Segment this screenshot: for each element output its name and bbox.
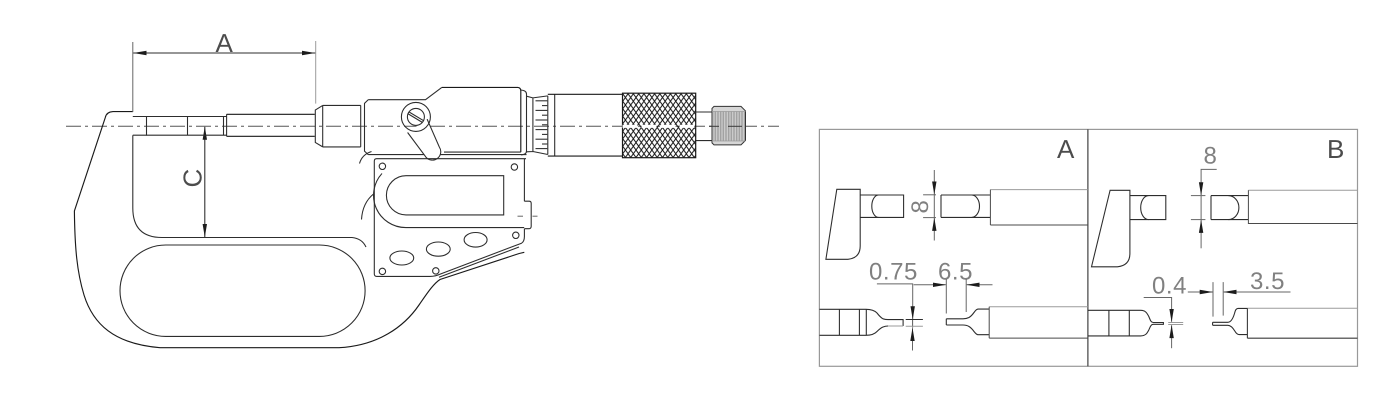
svg-text:C: C <box>178 169 208 188</box>
svg-text:B: B <box>1327 134 1344 164</box>
svg-text:A: A <box>216 28 234 58</box>
svg-text:8: 8 <box>1204 143 1218 170</box>
svg-text:8: 8 <box>907 200 934 214</box>
svg-text:0.75: 0.75 <box>869 259 918 286</box>
svg-text:6.5: 6.5 <box>938 259 973 286</box>
svg-text:3.5: 3.5 <box>1250 268 1285 295</box>
svg-text:0.4: 0.4 <box>1152 272 1187 299</box>
svg-text:A: A <box>1057 134 1075 164</box>
